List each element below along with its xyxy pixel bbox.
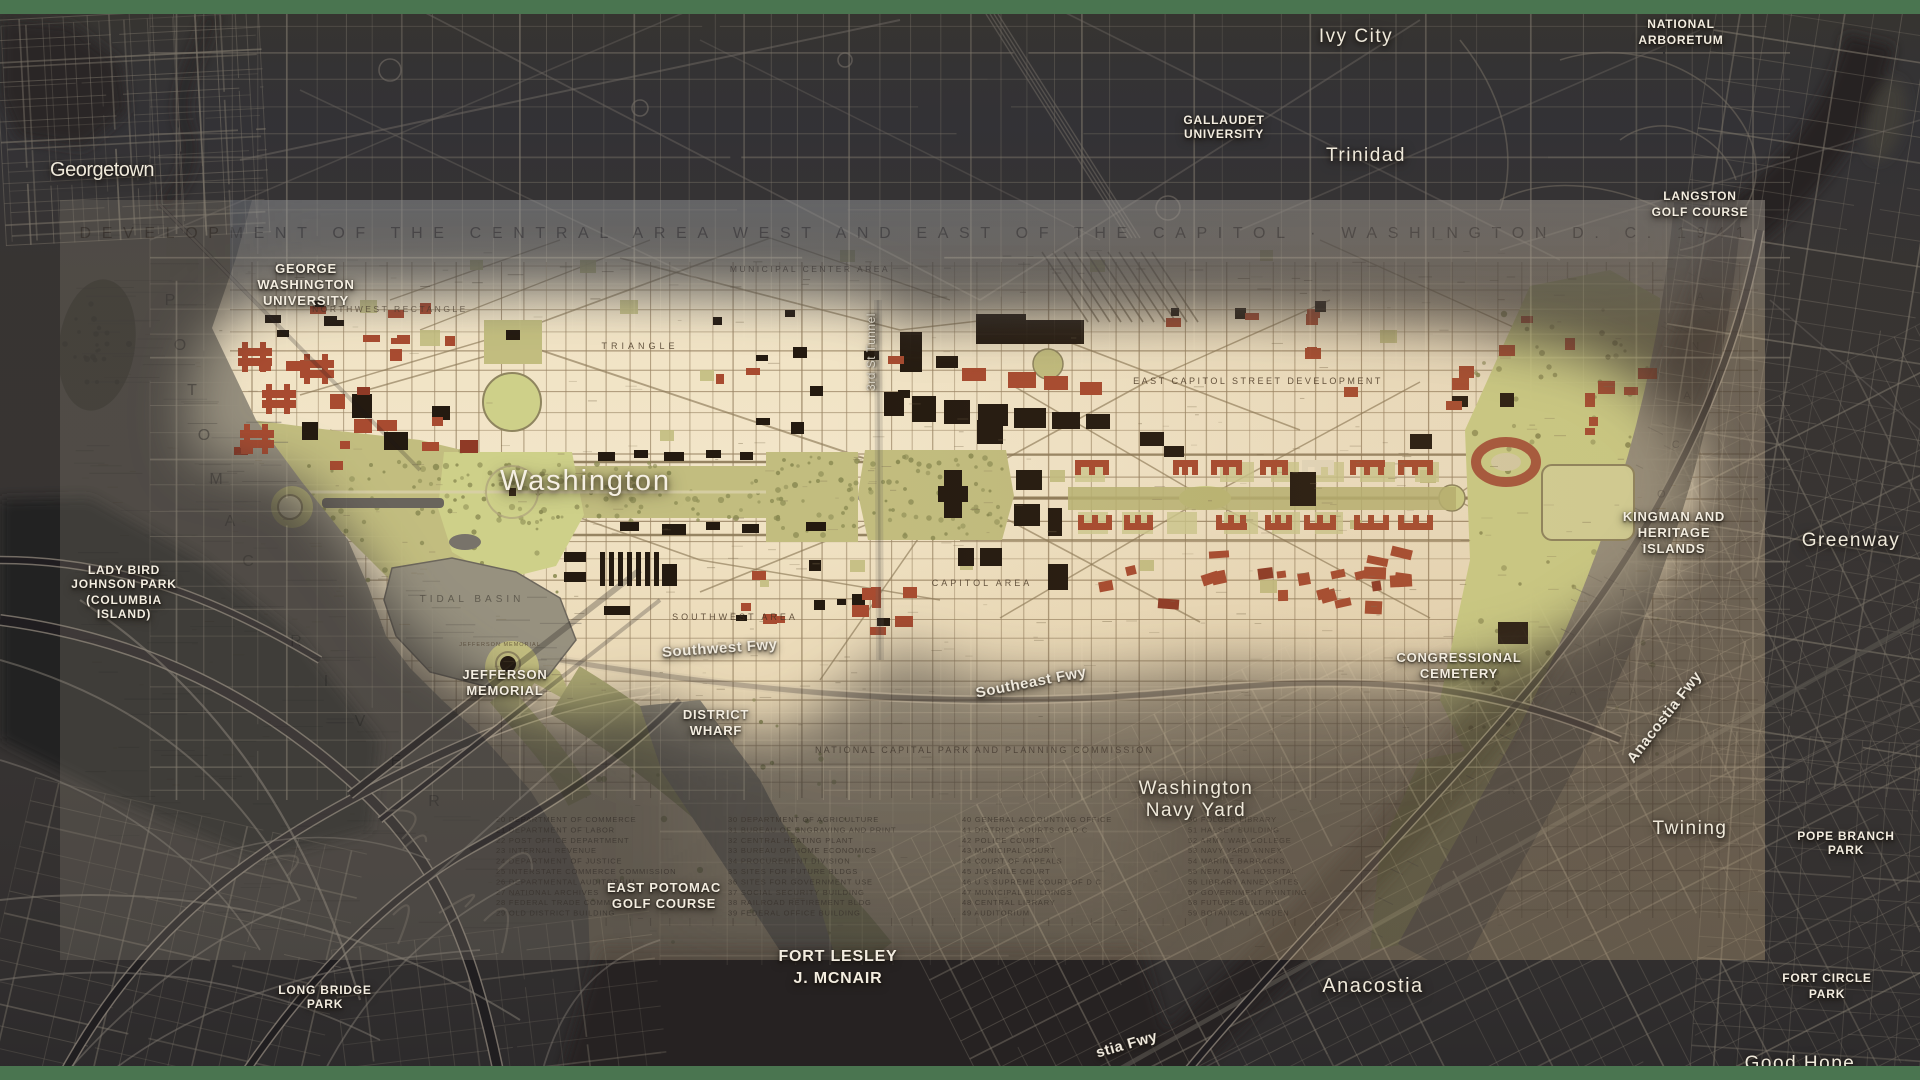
svg-text:Twining: Twining [1653, 818, 1728, 839]
svg-text:Greenway: Greenway [1802, 530, 1901, 551]
svg-text:HERITAGE: HERITAGE [1638, 525, 1711, 540]
svg-text:(COLUMBIA: (COLUMBIA [86, 593, 162, 607]
svg-text:Washington: Washington [500, 465, 672, 497]
svg-text:PARK: PARK [307, 997, 343, 1011]
svg-text:WASHINGTON: WASHINGTON [257, 277, 354, 292]
svg-text:GEORGE: GEORGE [275, 261, 337, 276]
svg-text:GALLAUDET: GALLAUDET [1183, 113, 1264, 127]
svg-text:GOLF COURSE: GOLF COURSE [612, 896, 716, 911]
svg-text:Navy Yard: Navy Yard [1146, 800, 1246, 821]
svg-text:Anacostia: Anacostia [1322, 975, 1423, 997]
svg-text:Georgetown: Georgetown [50, 159, 156, 181]
svg-text:GOLF COURSE: GOLF COURSE [1652, 205, 1749, 219]
svg-text:FORT LESLEY: FORT LESLEY [778, 948, 897, 965]
svg-text:KINGMAN AND: KINGMAN AND [1623, 509, 1725, 524]
svg-text:PARK: PARK [1809, 987, 1845, 1001]
svg-text:EAST POTOMAC: EAST POTOMAC [607, 880, 721, 895]
svg-text:3rd St Tunnel: 3rd St Tunnel [864, 313, 878, 391]
svg-text:WHARF: WHARF [690, 723, 742, 738]
svg-text:CONGRESSIONAL: CONGRESSIONAL [1396, 650, 1521, 665]
svg-text:DISTRICT: DISTRICT [683, 707, 749, 722]
svg-text:UNIVERSITY: UNIVERSITY [263, 293, 349, 308]
svg-text:ARBORETUM: ARBORETUM [1638, 33, 1723, 47]
svg-text:LONG BRIDGE: LONG BRIDGE [278, 983, 371, 997]
svg-text:LANGSTON: LANGSTON [1663, 189, 1737, 203]
svg-text:ISLANDS: ISLANDS [1643, 541, 1706, 556]
svg-text:Trinidad: Trinidad [1326, 145, 1406, 166]
svg-text:LADY BIRD: LADY BIRD [88, 563, 160, 577]
svg-text:JOHNSON PARK: JOHNSON PARK [71, 577, 176, 591]
svg-text:UNIVERSITY: UNIVERSITY [1184, 127, 1264, 141]
svg-text:Washington: Washington [1139, 778, 1254, 799]
svg-text:PARK: PARK [1828, 843, 1864, 857]
svg-text:J. MCNAIR: J. MCNAIR [794, 970, 883, 987]
svg-text:NATIONAL: NATIONAL [1647, 17, 1715, 31]
svg-text:ISLAND): ISLAND) [97, 607, 151, 621]
svg-text:MEMORIAL: MEMORIAL [466, 683, 543, 698]
svg-text:CEMETERY: CEMETERY [1420, 666, 1498, 681]
svg-text:Ivy City: Ivy City [1319, 26, 1393, 47]
svg-text:JEFFERSON: JEFFERSON [462, 667, 547, 682]
svg-text:POPE BRANCH: POPE BRANCH [1797, 829, 1894, 843]
svg-text:FORT CIRCLE: FORT CIRCLE [1782, 971, 1871, 985]
